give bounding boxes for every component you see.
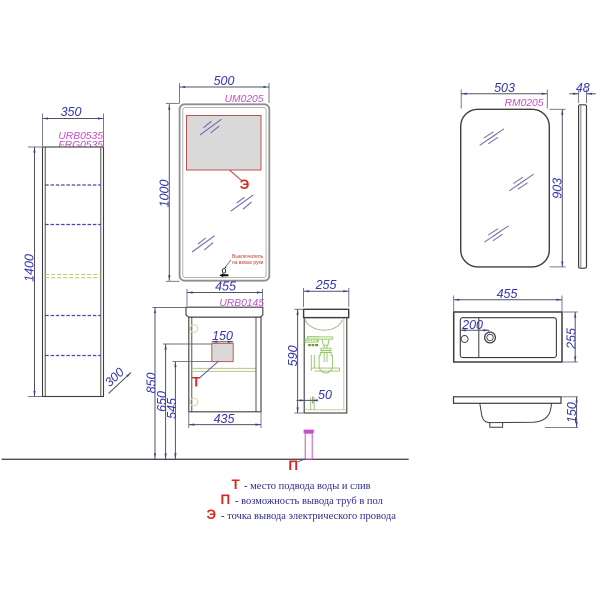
svg-text:Э: Э (207, 507, 217, 522)
svg-text:48: 48 (576, 81, 590, 95)
svg-text:П: П (221, 492, 231, 507)
svg-text:545: 545 (165, 398, 179, 419)
svg-text:150: 150 (212, 329, 233, 343)
svg-text:255: 255 (564, 328, 578, 350)
svg-text:Э: Э (240, 177, 250, 192)
svg-text:1000: 1000 (157, 180, 171, 208)
svg-text:455: 455 (215, 280, 236, 294)
svg-text:- место подвода воды и слив: - место подвода воды и слив (244, 481, 371, 492)
svg-text:- точка вывода электрического: - точка вывода электрического провода (221, 511, 396, 522)
svg-text:590: 590 (286, 345, 300, 366)
svg-text:455: 455 (497, 287, 518, 301)
svg-text:300: 300 (102, 365, 127, 389)
svg-text:Т: Т (232, 477, 241, 492)
svg-text:435: 435 (214, 412, 235, 426)
svg-text:П: П (288, 458, 298, 473)
svg-text:350: 350 (61, 105, 82, 119)
svg-text:на взмах руки: на взмах руки (232, 260, 263, 266)
svg-text:150: 150 (565, 402, 579, 423)
svg-text:850: 850 (145, 373, 159, 394)
svg-text:255: 255 (315, 278, 337, 292)
svg-text:500: 500 (214, 74, 235, 88)
svg-text:50: 50 (318, 388, 332, 402)
svg-text:200: 200 (461, 318, 483, 332)
svg-text:503: 503 (494, 81, 515, 95)
svg-text:UM0205: UM0205 (225, 94, 264, 105)
svg-text:903: 903 (551, 178, 565, 199)
svg-text:RM0205: RM0205 (505, 98, 544, 109)
svg-text:1400: 1400 (23, 254, 37, 282)
svg-text:- возможность вывода труб в п: - возможность вывода труб в пол (235, 496, 383, 507)
svg-text:Т: Т (192, 375, 201, 390)
